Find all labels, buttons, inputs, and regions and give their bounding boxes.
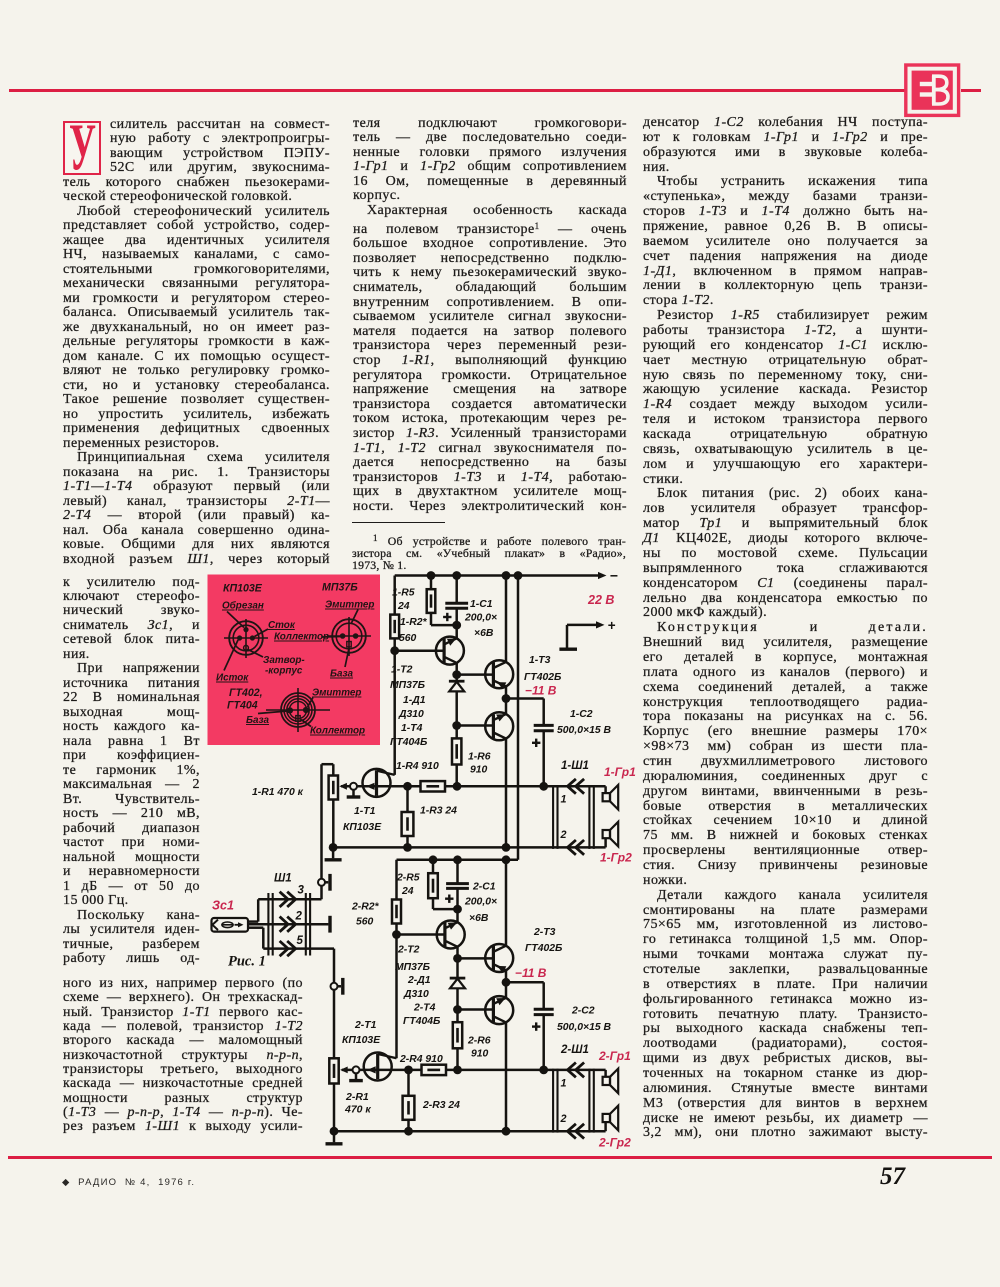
svg-text:2-R3 24: 2-R3 24 bbox=[422, 1100, 460, 1111]
svg-text:Коллектор: Коллектор bbox=[274, 632, 329, 643]
svg-text:2-R1: 2-R1 bbox=[345, 1091, 369, 1103]
svg-text:КП103Е: КП103Е bbox=[223, 583, 263, 595]
svg-text:1-Гр2: 1-Гр2 bbox=[600, 851, 632, 865]
svg-text:2: 2 bbox=[295, 911, 303, 923]
svg-text:-корпус: -корпус bbox=[265, 666, 303, 677]
svg-text:МП37Б: МП37Б bbox=[322, 582, 358, 594]
svg-text:560: 560 bbox=[399, 633, 417, 644]
svg-text:1-Т1: 1-Т1 bbox=[354, 806, 376, 817]
svg-text:ГТ402Б: ГТ402Б bbox=[524, 672, 561, 683]
svg-text:КП103Е: КП103Е bbox=[343, 822, 382, 833]
svg-text:910: 910 bbox=[471, 1049, 489, 1060]
svg-text:2-R6: 2-R6 bbox=[467, 1036, 491, 1047]
svg-text:2-R5: 2-R5 bbox=[396, 873, 420, 884]
svg-text:1-R5: 1-R5 bbox=[392, 588, 415, 599]
svg-text:2-Гр2: 2-Гр2 bbox=[598, 1136, 631, 1150]
svg-text:910: 910 bbox=[470, 765, 488, 776]
svg-text:Зс1: Зс1 bbox=[212, 899, 234, 913]
svg-text:200,0×: 200,0× bbox=[464, 613, 497, 624]
svg-text:2-R4 910: 2-R4 910 bbox=[399, 1054, 443, 1065]
svg-text:1-Т2: 1-Т2 bbox=[391, 665, 413, 676]
svg-text:1-R1 470 к: 1-R1 470 к bbox=[252, 787, 304, 798]
svg-text:1-Т3: 1-Т3 bbox=[529, 655, 551, 666]
svg-text:1: 1 bbox=[561, 1077, 567, 1089]
svg-text:24: 24 bbox=[401, 886, 414, 897]
svg-text:1-R2*: 1-R2* bbox=[400, 617, 428, 628]
svg-text:База: База bbox=[330, 669, 354, 680]
svg-text:Коллектор: Коллектор bbox=[310, 726, 365, 737]
svg-text:1-Т4: 1-Т4 bbox=[401, 723, 423, 734]
svg-text:МП37Б: МП37Б bbox=[395, 962, 430, 973]
svg-text:3: 3 bbox=[298, 885, 305, 897]
svg-text:КП103Е: КП103Е bbox=[342, 1035, 381, 1046]
svg-text:560: 560 bbox=[356, 917, 374, 928]
svg-text:−11 В: −11 В bbox=[515, 966, 547, 980]
svg-text:Эмиттер: Эмиттер bbox=[325, 600, 374, 611]
svg-text:2-С2: 2-С2 bbox=[571, 1006, 595, 1017]
svg-text:2-Т4: 2-Т4 bbox=[413, 1003, 436, 1014]
svg-text:ГТ404: ГТ404 bbox=[227, 700, 258, 712]
svg-text:Сток: Сток bbox=[268, 620, 296, 631]
svg-text:2-Ш1: 2-Ш1 bbox=[560, 1044, 589, 1056]
svg-text:+: + bbox=[608, 618, 616, 633]
svg-text:500,0×15 В: 500,0×15 В bbox=[557, 725, 612, 736]
svg-text:1-С1: 1-С1 bbox=[470, 599, 493, 610]
svg-text:1-R3 24: 1-R3 24 bbox=[420, 806, 457, 817]
svg-text:200,0×: 200,0× bbox=[464, 897, 497, 908]
svg-text:ГТ404Б: ГТ404Б bbox=[390, 737, 427, 748]
svg-text:2-Д1: 2-Д1 bbox=[407, 975, 431, 986]
svg-text:2-Гр1: 2-Гр1 bbox=[598, 1049, 631, 1063]
svg-text:2: 2 bbox=[560, 829, 567, 841]
svg-text:Д310: Д310 bbox=[403, 989, 429, 1000]
svg-text:5: 5 bbox=[297, 935, 304, 947]
svg-text:470 к: 470 к bbox=[344, 1104, 371, 1116]
svg-text:2-R2*: 2-R2* bbox=[351, 902, 380, 913]
svg-text:МП37Б: МП37Б bbox=[390, 680, 425, 691]
svg-text:Рис. 1: Рис. 1 bbox=[228, 954, 266, 970]
svg-text:22 В: 22 В bbox=[587, 593, 614, 607]
svg-text:Ш1: Ш1 bbox=[274, 873, 292, 885]
svg-text:ГТ402,: ГТ402, bbox=[229, 687, 263, 699]
svg-text:1-Гр1: 1-Гр1 bbox=[604, 765, 636, 779]
svg-text:2-Т2: 2-Т2 bbox=[397, 945, 420, 956]
svg-text:1-С2: 1-С2 bbox=[570, 709, 593, 720]
svg-text:1: 1 bbox=[561, 794, 567, 806]
svg-text:2-Т1: 2-Т1 bbox=[354, 1020, 377, 1031]
svg-text:1-Ш1: 1-Ш1 bbox=[561, 760, 589, 772]
svg-text:ГТ404Б: ГТ404Б bbox=[403, 1016, 440, 1027]
svg-text:−: − bbox=[610, 568, 618, 584]
svg-text:2: 2 bbox=[560, 1113, 567, 1125]
svg-text:База: База bbox=[246, 715, 270, 726]
svg-text:Затвор-: Затвор- bbox=[263, 655, 305, 666]
svg-text:2-Т3: 2-Т3 bbox=[533, 927, 556, 938]
svg-text:1-R6: 1-R6 bbox=[468, 752, 491, 763]
svg-text:1-R4 910: 1-R4 910 bbox=[396, 761, 439, 772]
svg-text:1-Д1: 1-Д1 bbox=[403, 695, 426, 706]
svg-text:×6В: ×6В bbox=[474, 628, 494, 639]
svg-text:Д310: Д310 bbox=[398, 709, 424, 720]
svg-text:Исток: Исток bbox=[216, 673, 249, 684]
svg-text:×6В: ×6В bbox=[469, 913, 489, 924]
svg-text:2-С1: 2-С1 bbox=[472, 882, 496, 893]
svg-text:24: 24 bbox=[397, 601, 410, 612]
svg-text:Обрезан: Обрезан bbox=[222, 601, 264, 612]
svg-text:−11 В: −11 В bbox=[525, 684, 557, 698]
svg-text:ГТ402Б: ГТ402Б bbox=[525, 943, 562, 954]
svg-text:500,0×15 В: 500,0×15 В bbox=[557, 1022, 612, 1033]
svg-text:Эмиттер: Эмиттер bbox=[312, 688, 361, 699]
